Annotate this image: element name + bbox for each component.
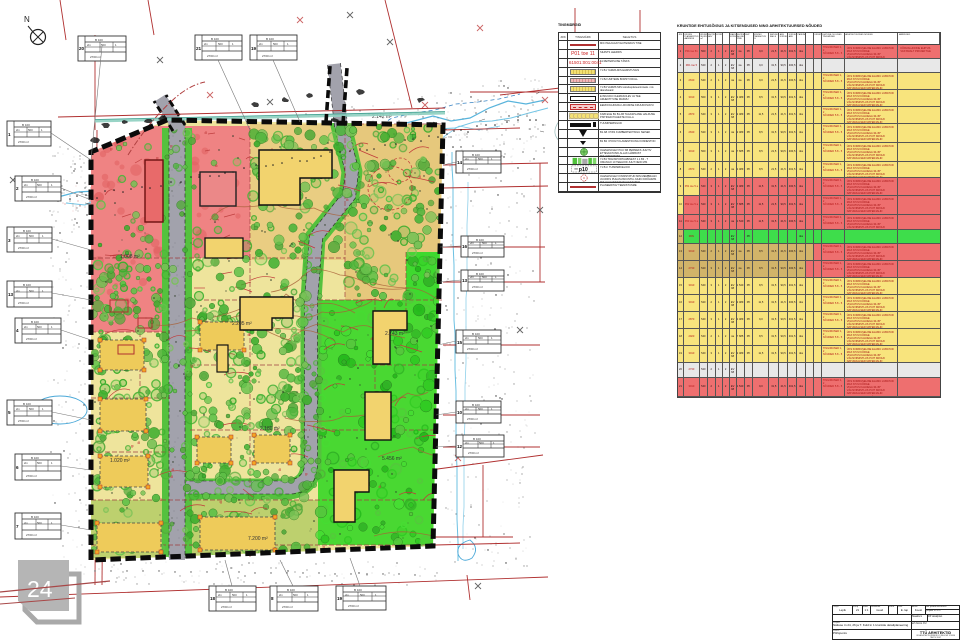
svg-text:B 100: B 100 <box>22 123 30 127</box>
svg-text:500: 500 <box>37 521 42 525</box>
svg-text:2700 m²: 2700 m² <box>26 195 37 199</box>
svg-text:500: 500 <box>293 593 298 597</box>
svg-text:B 100: B 100 <box>225 588 233 592</box>
svg-text:N: N <box>24 15 30 24</box>
svg-text:16: 16 <box>462 244 468 249</box>
svg-text:2m: 2m <box>465 157 470 161</box>
svg-text:B 100: B 100 <box>31 320 39 324</box>
svg-text:18: 18 <box>210 596 216 601</box>
svg-text:2m: 2m <box>24 461 29 465</box>
svg-text:2m: 2m <box>259 42 264 46</box>
svg-text:500: 500 <box>218 42 223 46</box>
svg-text:4: 4 <box>16 328 19 333</box>
svg-text:2700 m²: 2700 m² <box>26 533 37 537</box>
svg-text:2700 m²: 2700 m² <box>18 301 29 305</box>
svg-text:8: 8 <box>271 596 274 601</box>
svg-text:5.456 m²: 5.456 m² <box>382 456 402 462</box>
svg-text:B 100: B 100 <box>23 229 31 233</box>
svg-text:19: 19 <box>337 596 343 601</box>
svg-text:1.008 m²: 1.008 m² <box>120 254 140 260</box>
svg-text:B 100: B 100 <box>31 178 39 182</box>
svg-text:2700 m²: 2700 m² <box>18 140 29 144</box>
svg-text:2700 m²: 2700 m² <box>348 604 359 608</box>
svg-text:2m: 2m <box>465 336 470 340</box>
svg-text:500: 500 <box>29 407 34 411</box>
svg-text:2m: 2m <box>279 593 284 597</box>
svg-text:500: 500 <box>37 325 42 329</box>
svg-text:B 100: B 100 <box>31 515 39 519</box>
svg-text:5: 5 <box>8 410 11 415</box>
svg-text:21: 21 <box>196 46 202 51</box>
svg-text:500: 500 <box>28 128 33 132</box>
svg-text:500: 500 <box>478 336 483 340</box>
svg-text:2700 m²: 2700 m² <box>262 54 273 58</box>
svg-text:12: 12 <box>457 444 463 449</box>
svg-text:500: 500 <box>29 289 34 293</box>
svg-text:2700 m²: 2700 m² <box>207 54 218 58</box>
svg-text:B 100: B 100 <box>23 283 31 287</box>
svg-text:2m: 2m <box>16 289 21 293</box>
svg-text:B 100: B 100 <box>23 402 31 406</box>
svg-text:500: 500 <box>479 441 484 445</box>
svg-text:13: 13 <box>462 278 468 283</box>
svg-text:3: 3 <box>8 238 11 243</box>
svg-text:500: 500 <box>478 157 483 161</box>
svg-text:B 100: B 100 <box>95 38 103 42</box>
svg-text:2m: 2m <box>87 43 92 47</box>
svg-text:10: 10 <box>457 410 463 415</box>
svg-text:500: 500 <box>273 42 278 46</box>
svg-text:500: 500 <box>482 241 487 245</box>
svg-text:15: 15 <box>457 340 463 345</box>
svg-text:2700 m²: 2700 m² <box>18 246 29 250</box>
svg-text:2m: 2m <box>16 407 21 411</box>
svg-text:1.020 m²: 1.020 m² <box>110 458 130 464</box>
svg-text:2m: 2m <box>218 593 223 597</box>
svg-text:B 100: B 100 <box>287 588 295 592</box>
svg-text:2700 m²: 2700 m² <box>26 337 37 341</box>
svg-text:B 100: B 100 <box>354 588 362 592</box>
svg-text:500: 500 <box>29 234 34 238</box>
svg-text:1: 1 <box>8 132 11 137</box>
svg-text:2m: 2m <box>16 128 21 132</box>
svg-text:7.200 m²: 7.200 m² <box>248 536 268 542</box>
svg-text:19: 19 <box>251 46 257 51</box>
svg-text:7: 7 <box>16 524 19 529</box>
svg-text:2700 m²: 2700 m² <box>472 251 483 255</box>
svg-text:p10: p10 <box>579 168 588 174</box>
svg-text:2m: 2m <box>24 183 29 187</box>
svg-text:20: 20 <box>79 46 85 51</box>
svg-text:2700 m²: 2700 m² <box>467 417 478 421</box>
svg-text:500: 500 <box>360 593 365 597</box>
svg-text:B 100: B 100 <box>31 456 39 460</box>
svg-text:2700 m²: 2700 m² <box>472 285 483 289</box>
svg-text:2700 m²: 2700 m² <box>221 605 232 609</box>
svg-text:14: 14 <box>457 160 463 165</box>
svg-text:2700 m²: 2700 m² <box>18 419 29 423</box>
svg-text:500: 500 <box>482 275 487 279</box>
svg-text:500: 500 <box>37 183 42 187</box>
svg-text:2700 m²: 2700 m² <box>26 474 37 478</box>
svg-text:2m: 2m <box>16 234 21 238</box>
svg-text:2700 m²: 2700 m² <box>282 605 293 609</box>
svg-text:B 100: B 100 <box>266 37 274 41</box>
svg-text:2700 m²: 2700 m² <box>468 451 479 455</box>
svg-text:2700 m²: 2700 m² <box>467 167 478 171</box>
svg-text:2.743 m²: 2.743 m² <box>385 331 405 337</box>
svg-text:2700 m²: 2700 m² <box>90 55 101 59</box>
svg-text:2700 m²: 2700 m² <box>467 347 478 351</box>
svg-text:13: 13 <box>8 292 14 297</box>
svg-text:2m: 2m <box>465 441 470 445</box>
svg-text:2m: 2m <box>204 42 209 46</box>
svg-text:B 100: B 100 <box>211 37 219 41</box>
svg-text:2m: 2m <box>24 325 29 329</box>
svg-text:2: 2 <box>16 186 19 191</box>
svg-text:2m: 2m <box>345 593 350 597</box>
svg-text:2m: 2m <box>470 241 475 245</box>
svg-text:500: 500 <box>37 461 42 465</box>
svg-text:2m: 2m <box>470 275 475 279</box>
svg-text:500: 500 <box>478 407 483 411</box>
svg-text:6: 6 <box>16 465 19 470</box>
svg-text:2m: 2m <box>24 521 29 525</box>
svg-text:500: 500 <box>232 593 237 597</box>
svg-text:2m: 2m <box>465 407 470 411</box>
svg-text:2.180 m²: 2.180 m² <box>260 426 280 432</box>
svg-text:2.205 m²: 2.205 m² <box>232 321 252 327</box>
